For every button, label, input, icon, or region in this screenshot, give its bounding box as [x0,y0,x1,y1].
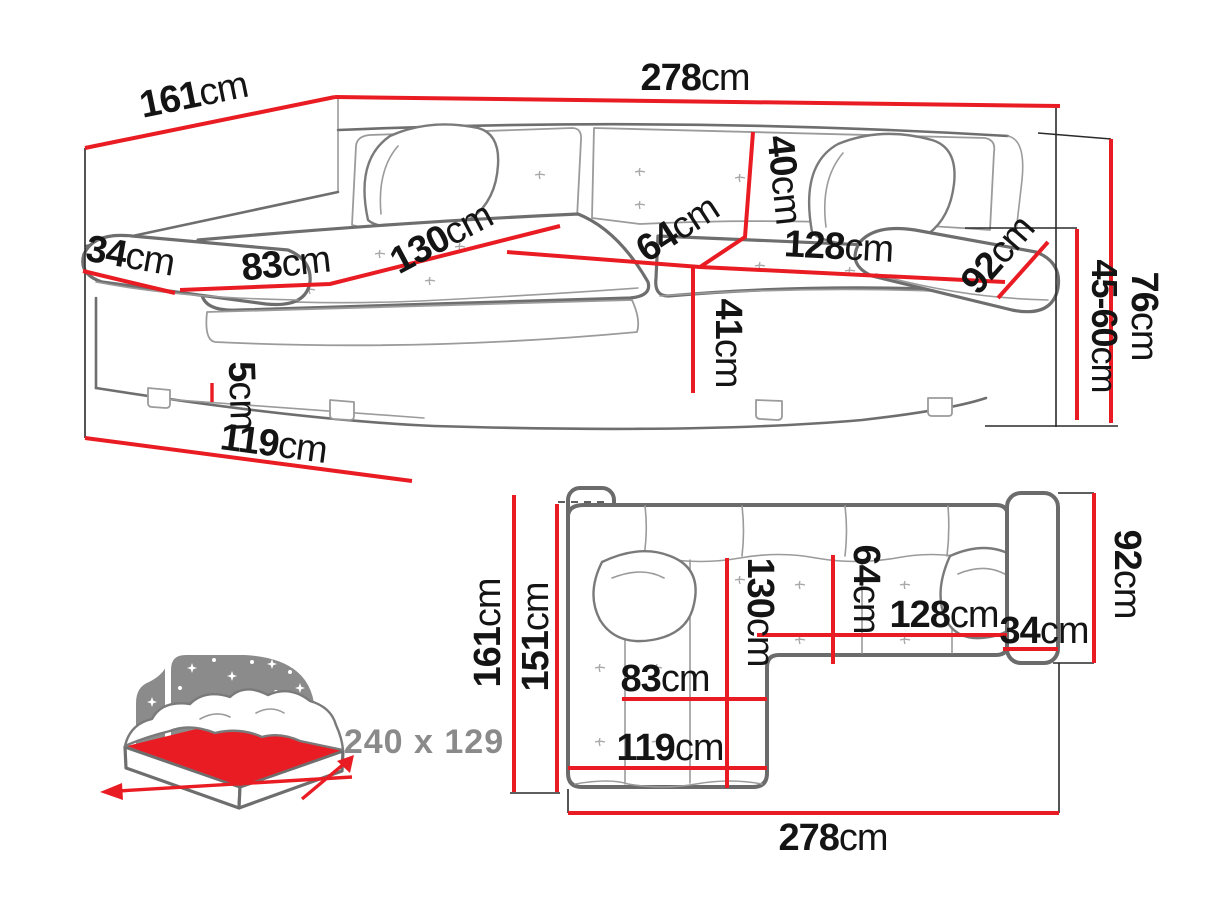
sofa-leg [330,400,354,420]
sleeping-dimensions-label: 240 x 129 [344,723,504,761]
label-45-60: 45-60cm [1084,259,1125,392]
label-130-plan: 130cm [739,557,781,666]
label-76: 76cm [1123,272,1165,361]
label-161-plan: 161cm [467,578,509,687]
label-92-plan: 92cm [1106,530,1148,619]
tick-76-top [1038,133,1111,139]
perspective-view: 161cm 278cm 34cm 83cm 130cm 40cm 64cm 12… [83,57,1165,481]
label-119: 119cm [218,416,330,472]
label-41: 41cm [707,299,749,388]
diagram-canvas: 161cm 278cm 34cm 83cm 130cm 40cm 64cm 12… [0,0,1214,911]
label-128-plan: 128cm [889,594,998,636]
label-64-plan: 64cm [845,545,887,634]
label-128: 128cm [783,223,894,271]
label-34-plan: 34cm [1000,610,1089,652]
label-278-plan: 278cm [778,817,887,859]
top-down-view: 161cm 151cm 130cm 64cm 128cm 34cm 92cm 8… [467,488,1148,859]
sofa-dimension-diagram: 161cm 278cm 34cm 83cm 130cm 40cm 64cm 12… [0,0,1214,911]
pillow-left-top [593,551,695,641]
sofa-leg [928,398,952,416]
label-151-plan: 151cm [515,582,557,691]
sleeping-area-icon: 240 x 129 [100,652,504,808]
sofa-leg [756,400,782,420]
label-278: 278cm [640,57,749,99]
sofa-leg [148,388,170,408]
label-119-plan: 119cm [617,727,724,769]
label-83-plan: 83cm [621,658,710,700]
